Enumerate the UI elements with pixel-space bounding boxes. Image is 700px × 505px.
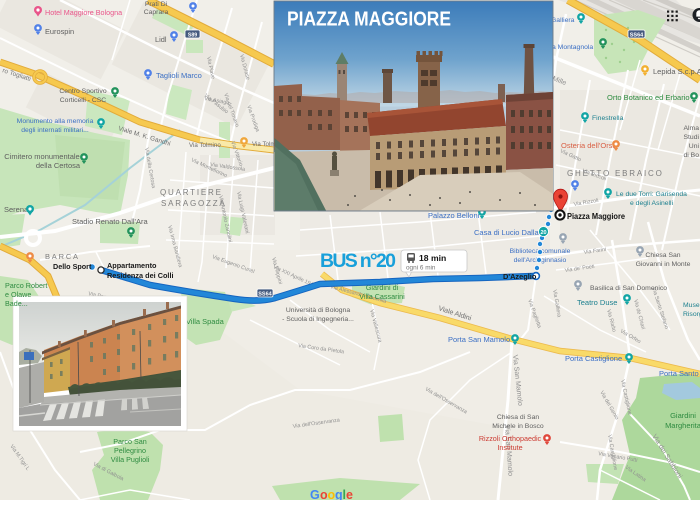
svg-text:QUARTIERE: QUARTIERE (160, 188, 223, 197)
svg-text:Alma: Alma (684, 125, 700, 132)
svg-text:20: 20 (540, 230, 546, 236)
svg-text:Giardini: Giardini (670, 411, 696, 420)
svg-text:Villa Spada: Villa Spada (186, 317, 225, 326)
svg-text:D'Azeglio: D'Azeglio (503, 272, 537, 281)
svg-text:Giovanni in Monte: Giovanni in Monte (636, 261, 691, 268)
svg-text:Via Tolm: Via Tolm (252, 141, 276, 148)
svg-text:Rizzoli Orthopaedic: Rizzoli Orthopaedic (479, 434, 542, 443)
svg-text:GHETTO EBRAICO: GHETTO EBRAICO (567, 169, 664, 178)
svg-text:Villa Cassarini: Villa Cassarini (359, 292, 405, 301)
svg-text:Monumento alla memoria: Monumento alla memoria (17, 118, 94, 125)
svg-text:Studi: Studi (684, 134, 700, 141)
svg-text:BUS n°20: BUS n°20 (320, 250, 396, 272)
svg-text:Bade...: Bade... (5, 299, 28, 308)
svg-text:Piazza Maggiore: Piazza Maggiore (567, 211, 625, 221)
svg-text:Dello Sport: Dello Sport (53, 262, 92, 271)
svg-text:Università di Bologna: Università di Bologna (286, 307, 350, 314)
svg-text:Eurospin: Eurospin (45, 27, 74, 36)
svg-text:Taglioli Marco: Taglioli Marco (156, 71, 202, 80)
svg-text:Caprara: Caprara (144, 9, 169, 16)
svg-text:ogni 6 min: ogni 6 min (406, 265, 436, 272)
svg-text:Institute: Institute (497, 443, 522, 452)
svg-text:Cimitero monumentale: Cimitero monumentale (4, 152, 79, 161)
svg-text:G: G (310, 488, 320, 500)
svg-text:Appartamento: Appartamento (107, 261, 157, 270)
svg-text:a Montagnola: a Montagnola (552, 44, 593, 51)
svg-text:Parco San: Parco San (113, 437, 147, 446)
svg-text:e Olawe: e Olawe (5, 290, 31, 299)
svg-text:Lepida S.c.p.A: Lepida S.c.p.A (653, 67, 700, 76)
svg-text:Porta San Mamolo: Porta San Mamolo (448, 335, 510, 344)
svg-text:Chiesa di San: Chiesa di San (497, 414, 540, 421)
svg-text:g: g (335, 488, 343, 500)
svg-text:Corticelli - CSC: Corticelli - CSC (60, 97, 107, 104)
svg-text:Lidl: Lidl (155, 35, 167, 44)
svg-text:Pellegrino: Pellegrino (114, 446, 146, 455)
svg-text:Hotel Maggiore Bologna: Hotel Maggiore Bologna (45, 8, 122, 17)
svg-text:SARAGOZZA: SARAGOZZA (161, 199, 227, 208)
svg-text:Palazzo Belloni: Palazzo Belloni (428, 211, 480, 220)
svg-text:Michele in Bosco: Michele in Bosco (492, 423, 544, 430)
svg-text:Le due Torri: Garisenda: Le due Torri: Garisenda (616, 191, 687, 198)
svg-text:e degli Asinelli: e degli Asinelli (630, 200, 674, 207)
svg-text:Porta Castiglione: Porta Castiglione (565, 354, 622, 363)
svg-text:Serena: Serena (4, 205, 29, 214)
svg-text:- Scuola di Ingegneria...: - Scuola di Ingegneria... (282, 316, 354, 323)
svg-text:Porta Santo: Porta Santo (659, 369, 699, 378)
svg-text:di Bo: di Bo (684, 152, 700, 159)
svg-text:SS64: SS64 (258, 291, 272, 297)
svg-text:Uni: Uni (689, 143, 700, 150)
svg-text:Villa Puglioli: Villa Puglioli (111, 455, 150, 464)
svg-text:Osteria dell'Orsa: Osteria dell'Orsa (561, 141, 617, 150)
svg-text:BARCA: BARCA (45, 252, 80, 261)
svg-text:Parco Robert: Parco Robert (5, 281, 47, 290)
svg-text:Margherita: Margherita (665, 421, 700, 430)
svg-text:Galliera: Galliera (551, 17, 575, 24)
svg-text:Residenza dei Colli: Residenza dei Colli (107, 271, 174, 280)
svg-text:S89: S89 (188, 32, 197, 38)
svg-text:Casa di Lucio Dalla: Casa di Lucio Dalla (474, 228, 539, 237)
svg-text:e: e (346, 488, 353, 500)
svg-text:Finestrella: Finestrella (592, 115, 624, 122)
svg-text:Muse: Muse (683, 302, 700, 309)
svg-text:PIAZZA MAGGIORE: PIAZZA MAGGIORE (287, 8, 451, 31)
svg-text:SS64: SS64 (630, 32, 644, 38)
svg-text:Risorg: Risorg (683, 311, 700, 318)
svg-text:Via Tolmino: Via Tolmino (189, 142, 221, 149)
svg-text:Orto Botanico ed Erbario: Orto Botanico ed Erbario (607, 93, 690, 102)
svg-text:degli internati militari...: degli internati militari... (21, 127, 89, 134)
svg-text:18 min: 18 min (419, 253, 446, 263)
svg-text:Prati Di: Prati Di (145, 1, 168, 8)
svg-text:Chiesa San: Chiesa San (645, 252, 680, 259)
svg-text:Basilica di San Domenico: Basilica di San Domenico (590, 285, 667, 292)
svg-text:della Certosa: della Certosa (36, 161, 81, 170)
svg-text:Stadio Renato Dall'Ara: Stadio Renato Dall'Ara (72, 217, 148, 226)
svg-text:Teatro Duse: Teatro Duse (577, 298, 617, 307)
svg-text:Centro Sportivo: Centro Sportivo (59, 88, 106, 95)
